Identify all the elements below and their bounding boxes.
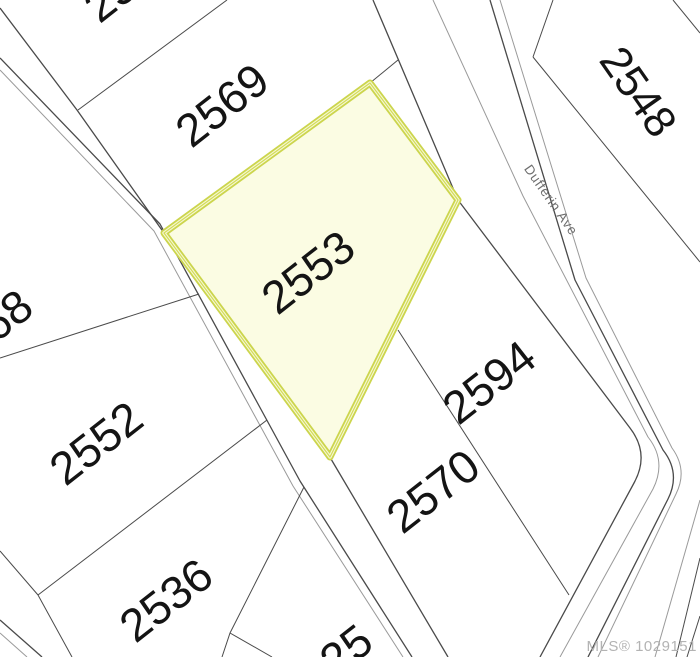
- boundary-2536-se-branch: [230, 633, 272, 657]
- parcel-label-2552: 2552: [40, 391, 153, 495]
- parcel-label-2568-partial: 2568: [0, 279, 42, 383]
- boundary-2548-nw: [533, 0, 553, 57]
- boundary-2536-west: [0, 551, 38, 595]
- plat-map: 25 2569 2548 2568 2553 2594 2552 2570 25…: [0, 0, 700, 657]
- boundary-2536-south: [38, 595, 72, 657]
- mls-watermark: MLS® 1029151: [587, 638, 697, 655]
- parcel-label-2536: 2536: [110, 548, 223, 652]
- plat-map-canvas: 25 2569 2548 2568 2553 2594 2552 2570 25…: [0, 0, 700, 657]
- street-label-dufferin-ave: Dufferin Ave: [521, 162, 581, 238]
- road-corner-bottom-left-companion: [0, 633, 27, 657]
- parcel-label-top-partial: 25: [74, 0, 146, 32]
- parcel-label-bottom-partial: 25: [310, 614, 382, 657]
- boundary-2553-north-ext: [370, 60, 398, 83]
- dufferin-sw-line: [373, 0, 641, 657]
- parcel-label-2570: 2570: [377, 439, 490, 543]
- parcel-label-2548: 2548: [590, 38, 686, 146]
- road-edge-left-ne: [0, 8, 164, 233]
- boundary-2548-ne: [673, 0, 700, 33]
- parcel-label-2569: 2569: [166, 53, 279, 157]
- parcel-label-2594: 2594: [433, 330, 546, 434]
- boundary-2536-se: [222, 487, 304, 657]
